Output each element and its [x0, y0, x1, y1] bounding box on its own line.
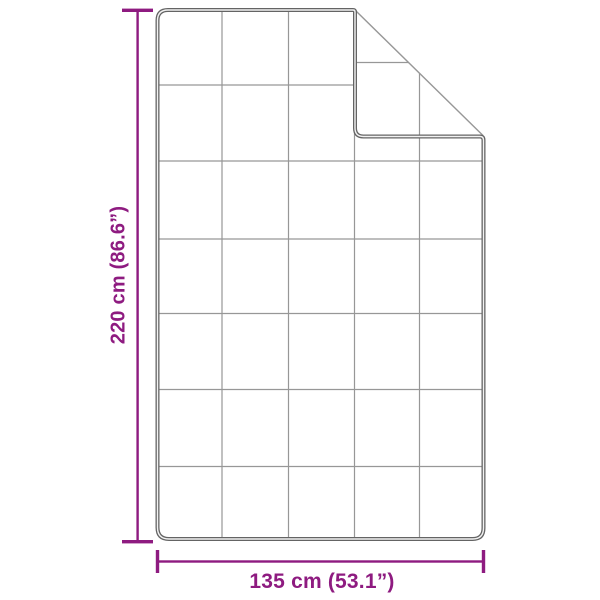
blanket-outline — [158, 10, 484, 539]
height-dimension-shaft — [136, 10, 138, 542]
blanket-dimension-diagram — [0, 0, 600, 600]
width-dimension-right-cap — [482, 550, 485, 573]
quilt-grid-lines — [158, 10, 484, 539]
height-dimension-label: 220 cm (86.6”) — [108, 206, 131, 344]
width-dimension-shaft — [158, 560, 484, 562]
height-dimension-bottom-cap — [122, 540, 153, 543]
width-dimension-label: 135 cm (53.1”) — [249, 570, 394, 594]
blanket-outline-highlight — [158, 10, 484, 539]
diagram-canvas: 220 cm (86.6”) 135 cm (53.1”) — [0, 0, 600, 600]
